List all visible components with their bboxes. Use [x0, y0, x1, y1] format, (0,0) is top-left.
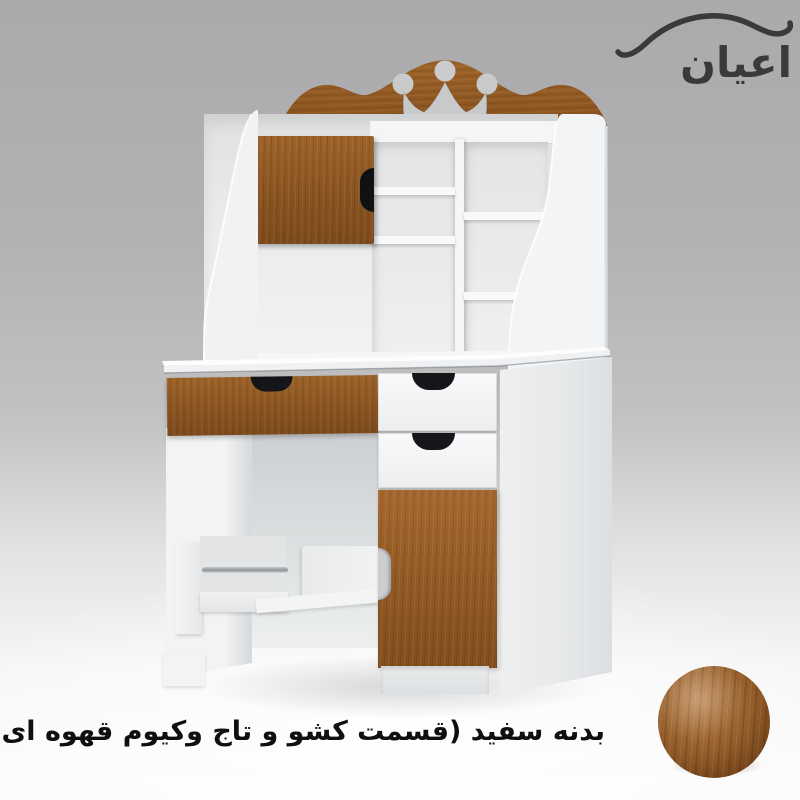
product-caption: بدنه سفید (قسمت کشو و تاج وکیوم قهوه ای … [55, 708, 605, 756]
hutch-vertical-divider [455, 139, 464, 365]
long-wood-drawer [167, 375, 379, 436]
drawer-handle-notch [251, 376, 293, 392]
door-handle-notch [360, 168, 374, 212]
plinth-base [381, 666, 489, 694]
book-rack-end-cap [175, 542, 202, 634]
pedestal-wood-door [378, 490, 497, 668]
hutch-cabinet-door [254, 136, 374, 244]
product-photo-scene: اعیان بدنه سفید (قسمت کشو و تاج وکیوم قه… [0, 0, 800, 800]
brand-logo-text: اعیان [612, 38, 792, 88]
desk-right-side-panel [496, 350, 612, 696]
pedestal-drawer-middle [378, 433, 497, 488]
side-panel-left-curved [194, 110, 258, 368]
wood-material-swatch [658, 666, 770, 778]
drawer-handle-notch [412, 433, 455, 450]
hutch-shelf [372, 187, 455, 195]
door-handle-notch [378, 548, 391, 600]
hutch-cubby-column-left [372, 142, 455, 364]
drawer-handle-notch [412, 373, 455, 390]
pedestal-drawer-top [378, 373, 497, 431]
left-leg-foot [163, 652, 205, 686]
brand-logo: اعیان [608, 12, 798, 110]
book-rack-metal-rail [202, 567, 288, 573]
side-panel-right-curved [505, 108, 611, 384]
hutch-shelf [372, 236, 455, 244]
